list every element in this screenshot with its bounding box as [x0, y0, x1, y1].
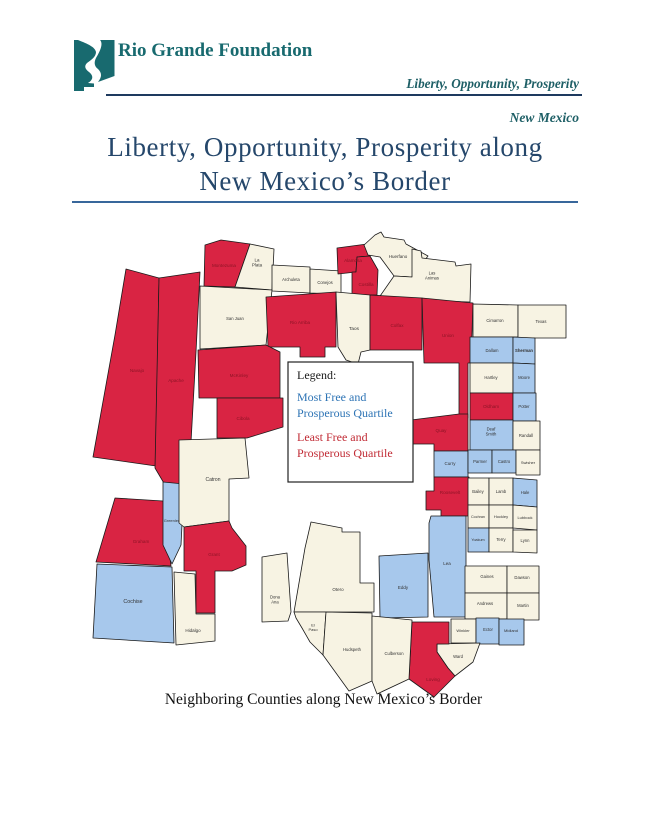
- svg-text:Oldham: Oldham: [483, 404, 499, 409]
- svg-text:Moore: Moore: [518, 375, 531, 380]
- svg-text:Apache: Apache: [168, 378, 184, 383]
- svg-text:Hartley: Hartley: [484, 375, 498, 380]
- svg-text:Sherman: Sherman: [515, 348, 533, 353]
- svg-text:Midland: Midland: [504, 628, 518, 633]
- svg-text:Lea: Lea: [443, 561, 451, 566]
- svg-text:Lubbock: Lubbock: [517, 515, 532, 520]
- svg-text:Randall: Randall: [519, 433, 533, 438]
- svg-text:Archuleta: Archuleta: [282, 277, 300, 282]
- svg-text:Cochise: Cochise: [123, 599, 142, 605]
- svg-text:Smith: Smith: [486, 431, 497, 436]
- svg-text:Plata: Plata: [252, 263, 263, 268]
- svg-text:Paso: Paso: [308, 627, 318, 632]
- svg-text:Cibola: Cibola: [236, 416, 249, 421]
- svg-text:Greenlee: Greenlee: [164, 518, 181, 523]
- svg-text:Huerfano: Huerfano: [389, 254, 408, 259]
- svg-text:Cochran: Cochran: [471, 515, 485, 519]
- svg-text:Yoakum: Yoakum: [471, 538, 484, 542]
- svg-text:Legend:: Legend:: [297, 368, 336, 382]
- svg-text:Gaines: Gaines: [480, 574, 493, 579]
- svg-text:Ector: Ector: [483, 627, 493, 632]
- svg-text:Hockley: Hockley: [494, 514, 508, 519]
- svg-text:Prosperous Quartile: Prosperous Quartile: [297, 406, 393, 420]
- svg-text:Winkler: Winkler: [456, 628, 470, 633]
- svg-text:Swisher: Swisher: [521, 460, 536, 465]
- svg-text:Colfax: Colfax: [390, 323, 404, 328]
- svg-text:Alamosa: Alamosa: [344, 258, 362, 263]
- svg-text:San Juan: San Juan: [226, 316, 244, 321]
- svg-text:Loving: Loving: [426, 677, 440, 682]
- svg-text:Rio Arriba: Rio Arriba: [290, 320, 311, 325]
- svg-text:Otero: Otero: [332, 587, 344, 592]
- svg-text:Prosperous Quartile: Prosperous Quartile: [297, 446, 393, 460]
- svg-text:Castro: Castro: [498, 459, 511, 464]
- svg-text:Potter: Potter: [518, 404, 530, 409]
- svg-text:Graham: Graham: [133, 539, 150, 544]
- svg-text:Cimarron: Cimarron: [486, 318, 504, 323]
- svg-text:Ana: Ana: [271, 599, 279, 604]
- svg-text:Curry: Curry: [445, 461, 457, 466]
- svg-text:McKinley: McKinley: [230, 373, 249, 378]
- svg-text:Animas: Animas: [425, 275, 439, 280]
- svg-text:Roosevelt: Roosevelt: [440, 490, 461, 495]
- svg-text:Taos: Taos: [349, 326, 360, 331]
- svg-text:Texas: Texas: [536, 319, 547, 324]
- svg-text:Dawson: Dawson: [514, 575, 530, 580]
- svg-text:Grant: Grant: [208, 552, 220, 557]
- svg-text:Martin: Martin: [517, 603, 529, 608]
- svg-text:Union: Union: [442, 333, 454, 338]
- svg-text:Lamb: Lamb: [496, 489, 507, 494]
- svg-text:Montezuma: Montezuma: [212, 263, 236, 268]
- svg-text:Costilla: Costilla: [358, 282, 374, 287]
- svg-text:Conejos: Conejos: [317, 280, 332, 285]
- svg-text:Least Free and: Least Free and: [297, 430, 368, 444]
- svg-text:Hidalgo: Hidalgo: [185, 628, 201, 633]
- svg-text:Quay: Quay: [436, 428, 448, 433]
- svg-text:Bailey: Bailey: [472, 489, 484, 494]
- svg-text:Parmer: Parmer: [473, 459, 487, 464]
- svg-text:Terry: Terry: [496, 537, 506, 542]
- svg-text:Lynn: Lynn: [521, 538, 531, 543]
- svg-text:Navajo: Navajo: [130, 368, 145, 373]
- svg-text:Most Free and: Most Free and: [297, 390, 366, 404]
- svg-text:Culberson: Culberson: [384, 651, 404, 656]
- svg-text:Catron: Catron: [205, 477, 220, 483]
- svg-text:Ward: Ward: [453, 654, 464, 659]
- svg-text:Hudspeth: Hudspeth: [343, 647, 362, 652]
- svg-text:Dallam: Dallam: [485, 348, 499, 353]
- svg-text:Eddy: Eddy: [398, 585, 409, 590]
- svg-text:Hale: Hale: [521, 490, 530, 495]
- svg-text:Andrews: Andrews: [477, 601, 493, 606]
